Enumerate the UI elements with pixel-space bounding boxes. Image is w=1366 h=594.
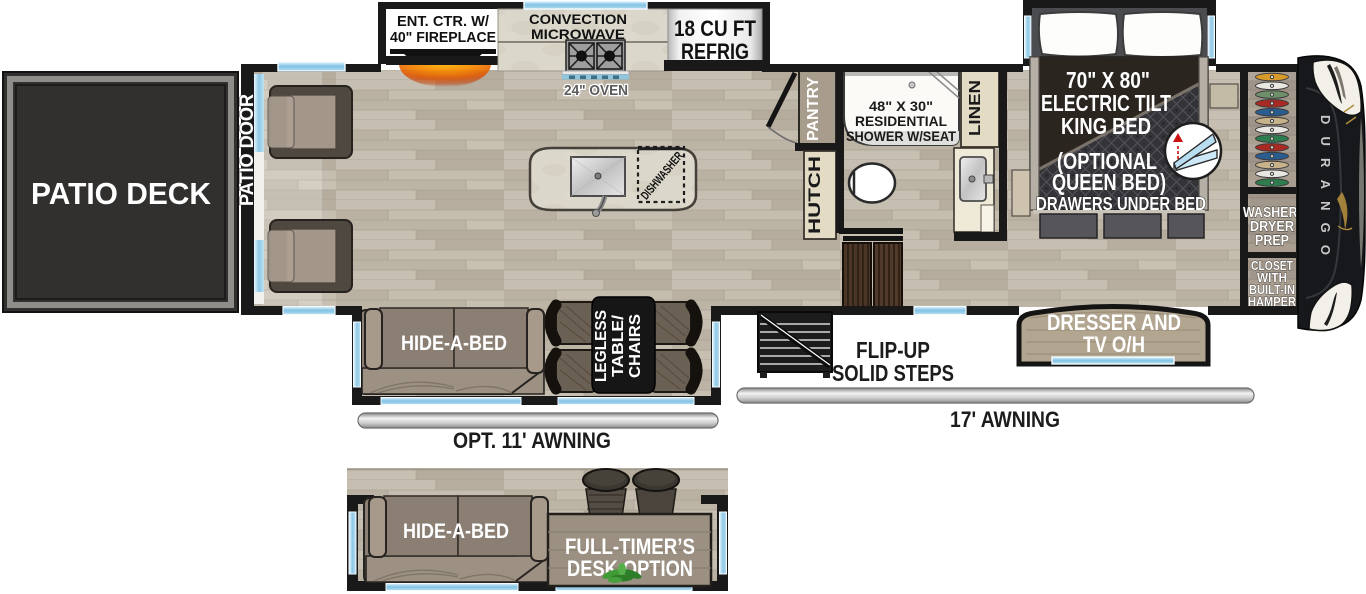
svg-text:RESIDENTIAL: RESIDENTIAL <box>855 113 947 129</box>
svg-text:HUTCH: HUTCH <box>805 156 824 234</box>
svg-text:TV O/H: TV O/H <box>1083 332 1145 357</box>
svg-text:SOLID STEPS: SOLID STEPS <box>832 360 954 386</box>
svg-text:17' AWNING: 17' AWNING <box>950 407 1060 432</box>
svg-text:TABLE/: TABLE/ <box>610 314 627 377</box>
svg-text:LINEN: LINEN <box>967 80 984 136</box>
svg-text:QUEEN BED): QUEEN BED) <box>1052 169 1166 195</box>
svg-text:CHAIRS: CHAIRS <box>627 314 644 378</box>
svg-text:40" FIREPLACE: 40" FIREPLACE <box>390 29 496 46</box>
svg-text:HIDE-A-BED: HIDE-A-BED <box>403 520 509 543</box>
svg-text:LEGLESS: LEGLESS <box>593 310 610 382</box>
svg-text:HAMPER: HAMPER <box>1248 295 1296 309</box>
svg-text:CONVECTION: CONVECTION <box>529 11 627 27</box>
svg-text:SHOWER W/SEAT: SHOWER W/SEAT <box>846 128 956 144</box>
svg-text:HIDE-A-BED: HIDE-A-BED <box>401 332 507 355</box>
svg-text:PATIO DOOR: PATIO DOOR <box>237 94 258 206</box>
svg-text:24" OVEN: 24" OVEN <box>564 83 628 99</box>
svg-text:18 CU FT: 18 CU FT <box>674 16 756 41</box>
svg-text:KING BED: KING BED <box>1061 113 1151 139</box>
svg-text:48" X 30": 48" X 30" <box>869 98 933 114</box>
svg-text:PREP: PREP <box>1255 232 1289 249</box>
svg-text:ENT. CTR. W/: ENT. CTR. W/ <box>397 13 490 30</box>
svg-text:OPT. 11' AWNING: OPT. 11' AWNING <box>453 428 611 453</box>
svg-text:PANTRY: PANTRY <box>805 77 822 141</box>
svg-text:PATIO DECK: PATIO DECK <box>31 176 212 211</box>
